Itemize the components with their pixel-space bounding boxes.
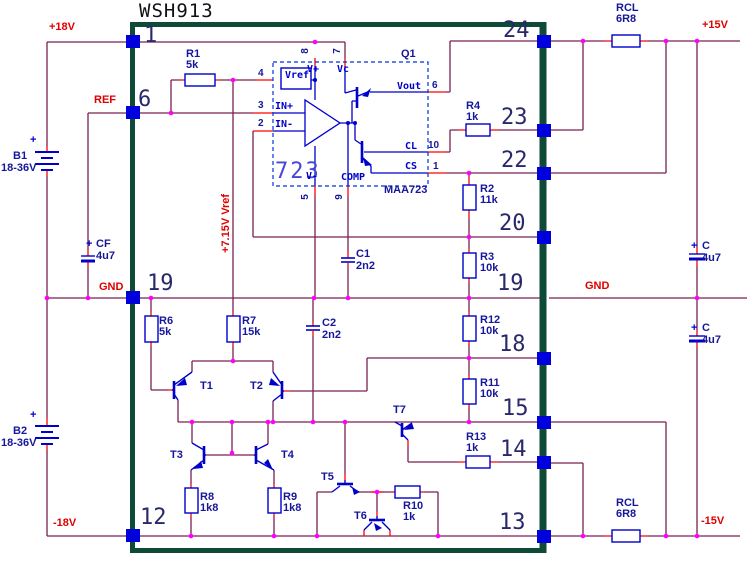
resistor-R11 <box>463 379 476 404</box>
resistor-R4 <box>466 124 490 136</box>
label-R13-value: 1k <box>466 443 478 454</box>
label-T3: T3 <box>170 450 183 461</box>
label-R2-value: 11k <box>480 195 498 206</box>
label-T7: T7 <box>393 405 406 416</box>
label-C2-value: 2n2 <box>322 330 341 341</box>
label-RCL-top-value: 6R8 <box>616 14 636 25</box>
pin-label-24: 24 <box>503 20 530 42</box>
ic-pin-label-vref: Vref <box>285 71 309 81</box>
plus-sign-CF: + <box>86 239 92 250</box>
label-CF-ref: CF <box>96 239 111 250</box>
module-border <box>133 22 544 553</box>
label-R1-value: 5k <box>186 60 198 71</box>
resistor-R2 <box>463 185 476 210</box>
ic-pin-label-comp: COMP <box>341 173 365 183</box>
label-R4-value: 1k <box>466 112 478 123</box>
pin-square-14 <box>537 456 551 469</box>
label-R6-value: 5k <box>159 327 171 338</box>
label-T4: T4 <box>281 450 294 461</box>
battery-B1 <box>35 152 59 170</box>
label-Q1: Q1 <box>401 49 416 60</box>
pin-square-18 <box>537 352 551 365</box>
ic-pin-number-9: 9 <box>335 194 345 200</box>
net-label-minus18v: -18V <box>53 518 76 529</box>
pin-label-19-right: 19 <box>497 273 524 295</box>
ic-pin-number-10: 10 <box>428 141 439 151</box>
label-C2-ref: C2 <box>322 318 336 329</box>
net-label-gnd-left: GND <box>99 282 123 293</box>
label-R3-value: 10k <box>480 263 498 274</box>
opamp-triangle <box>305 100 340 146</box>
ic-pin-label-inplus: IN+ <box>275 102 293 112</box>
resistors <box>145 35 640 542</box>
label-C1-ref: C1 <box>356 249 370 260</box>
resistor-R10 <box>395 486 420 498</box>
label-C-top-value: 4u7 <box>702 253 721 264</box>
label-C1-value: 2n2 <box>356 261 375 272</box>
pin-square-13 <box>537 530 551 543</box>
ic-pin-number-4: 4 <box>258 69 264 79</box>
label-R11-value: 10k <box>480 389 498 400</box>
plus-sign-B2: + <box>30 410 36 421</box>
ic-pin-label-vout: Vout <box>397 82 421 92</box>
label-T6: T6 <box>354 511 367 522</box>
pin-square-19 <box>126 291 140 304</box>
pin-label-18: 18 <box>499 334 526 356</box>
label-T1: T1 <box>200 381 213 392</box>
ic-pin-number-5: 5 <box>301 194 311 200</box>
pin-square-23 <box>537 124 551 137</box>
pin-label-15: 15 <box>502 398 529 420</box>
pin-label-6: 6 <box>138 89 151 111</box>
resistor-R1 <box>185 74 215 86</box>
label-R9-value: 1k8 <box>283 503 301 514</box>
label-CF-value: 4u7 <box>96 251 115 262</box>
pin-label-22: 22 <box>501 150 528 172</box>
label-B1-value: 18-36V <box>1 163 36 174</box>
pin-label-1: 1 <box>144 25 157 47</box>
ic-pin-number-6: 6 <box>432 81 438 91</box>
plus-sign-C-top: + <box>691 241 697 252</box>
ic-pin-label-cs: CS <box>405 162 417 172</box>
ic-pin-number-7: 7 <box>333 48 343 54</box>
ic-transistor-bars <box>357 87 362 163</box>
ic-pin-number-1: 1 <box>433 162 439 172</box>
capacitor-C1 <box>341 258 355 262</box>
pin-label-23: 23 <box>501 107 528 129</box>
ic-pin-number-3: 3 <box>258 101 264 111</box>
label-C-bottom-value: 4u7 <box>702 335 721 346</box>
label-T5: T5 <box>321 472 334 483</box>
ic-pin-label-inminus: IN- <box>275 120 293 130</box>
ic-pin-label-cl: CL <box>405 142 417 152</box>
resistor-R12 <box>463 316 476 341</box>
ic-arrows <box>362 88 372 166</box>
pin-square-15 <box>537 416 551 429</box>
net-label-gnd-right: GND <box>585 281 609 292</box>
capacitor-CF <box>81 256 95 261</box>
resistor-R9 <box>268 488 281 513</box>
net-label-vref-rail: +7.15V Vref <box>221 194 232 253</box>
ic-pin-label-vplus: V+ <box>307 65 319 75</box>
net-label-ref: REF <box>94 95 116 106</box>
net-label-plus15v: +15V <box>702 20 728 31</box>
pin-label-20: 20 <box>499 213 526 235</box>
schematic-page: WSH913161912242322201918151413+18VREFGND… <box>0 0 747 567</box>
ic-label-MAA723: MAA723 <box>384 185 427 196</box>
pin-square-12 <box>126 529 140 542</box>
resistor-R7 <box>227 316 240 342</box>
label-B2-value: 18-36V <box>1 438 36 449</box>
schematic-title: WSH913 <box>139 2 214 21</box>
capacitor-C2 <box>306 326 320 330</box>
resistor-R6 <box>145 316 158 342</box>
label-C-top-ref: C <box>702 241 710 252</box>
label-RCL-bottom-value: 6R8 <box>616 509 636 520</box>
plus-sign-C-bottom: + <box>691 323 697 334</box>
pin-label-13: 13 <box>499 512 526 534</box>
pin-label-12: 12 <box>140 507 167 529</box>
ic-pin-number-8: 8 <box>301 48 311 54</box>
pin-square-1 <box>126 35 140 48</box>
battery-B2 <box>35 426 59 444</box>
label-T2: T2 <box>250 381 263 392</box>
ic-pin-label-vminus: V- <box>306 172 318 182</box>
label-B2-ref: B2 <box>13 426 27 437</box>
pin-label-19-left: 19 <box>147 273 174 295</box>
label-R10-value: 1k <box>403 512 415 523</box>
pin-square-20 <box>537 231 551 244</box>
resistor-R8 <box>185 488 198 513</box>
label-C-bottom-ref: C <box>702 323 710 334</box>
pin-label-14: 14 <box>500 439 527 461</box>
resistor-R13 <box>466 456 490 468</box>
net-label-plus18v: +18V <box>49 22 75 33</box>
resistor-RCL-top <box>612 35 640 47</box>
pin-square-24 <box>537 35 551 48</box>
label-B1-ref: B1 <box>13 151 27 162</box>
label-R8-value: 1k8 <box>200 503 218 514</box>
resistor-RCL-bottom <box>612 530 640 542</box>
label-R12-value: 10k <box>480 326 498 337</box>
pin-square-22 <box>537 167 551 180</box>
resistor-R3 <box>463 253 476 278</box>
ic-junction-dots <box>313 78 357 125</box>
plus-sign-B1: + <box>30 135 36 146</box>
ic-pin-label-vc: Vc <box>337 65 349 75</box>
net-label-minus15v: -15V <box>701 516 724 527</box>
label-R7-value: 15k <box>242 327 260 338</box>
ic-pin-number-2: 2 <box>258 119 264 129</box>
